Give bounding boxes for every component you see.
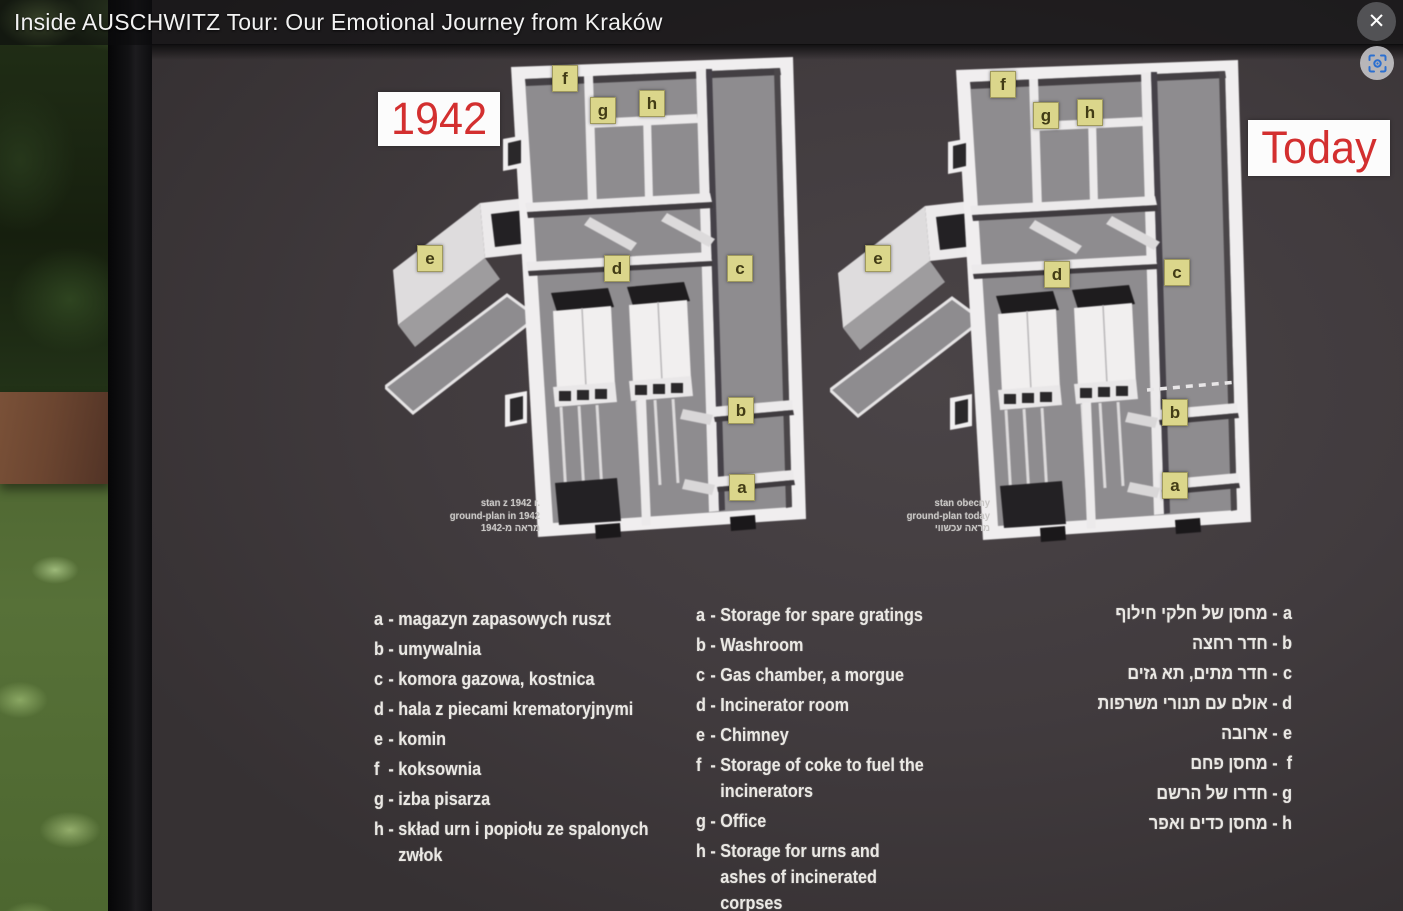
legend-key: c	[374, 666, 388, 692]
room-marker-g: g	[590, 97, 616, 124]
close-icon: ✕	[1368, 11, 1386, 32]
legend-text: חדרו של הרשם	[1156, 780, 1267, 806]
room-marker-b: b	[1162, 399, 1188, 426]
legend-text: אולם עם תנורי משרפות	[1098, 690, 1268, 716]
legend-separator: -	[1268, 810, 1279, 836]
legend-text: komora gazowa, kostnica	[398, 666, 594, 692]
today-text: Today	[1261, 122, 1376, 174]
legend-key: d	[696, 692, 710, 718]
legend-separator: -	[710, 602, 721, 628]
legend-key: b	[374, 636, 388, 662]
year-1942-text: 1942	[391, 93, 487, 145]
legend-separator: -	[710, 838, 721, 911]
legend-item: c-Gas chamber, a morgue	[696, 662, 926, 688]
video-title-bar: Inside AUSCHWITZ Tour: Our Emotional Jou…	[0, 0, 1403, 45]
legend-separator: -	[1268, 690, 1279, 716]
legend-text: hala z piecami krematoryjnymi	[398, 696, 633, 722]
legend-separator: -	[388, 726, 399, 752]
room-marker-b: b	[728, 397, 754, 424]
legend-item: b-חדר רחצה	[1056, 630, 1292, 656]
legend-text: מחסן של חלקי חילוף	[1115, 600, 1267, 626]
legend-text: חדר מתים, תא גזים	[1127, 660, 1267, 686]
legend-item: b-Washroom	[696, 632, 926, 658]
legend-key: h	[696, 838, 710, 911]
legend-item: g-Office	[696, 808, 926, 834]
legend-text: skład urn i popiołu ze spalonych zwłok	[398, 816, 650, 868]
legend-separator: -	[710, 692, 721, 718]
legend-separator: -	[388, 756, 399, 782]
caption-1942-he: מראה מ-1942	[396, 523, 540, 536]
legend-text: komin	[398, 726, 446, 752]
legend-separator: -	[710, 722, 721, 748]
close-button[interactable]: ✕	[1357, 2, 1396, 41]
visual-search-button[interactable]	[1360, 46, 1394, 80]
legend-separator: -	[1268, 780, 1279, 806]
legend-item: h-skład urn i popiołu ze spalonych zwłok	[374, 816, 650, 868]
legend-key: h	[374, 816, 388, 868]
legend-key: c	[696, 662, 710, 688]
legend-english: a-Storage for spare gratings b-Washroom …	[696, 602, 926, 911]
legend-separator: -	[388, 696, 399, 722]
legend-item: f-Storage of coke to fuel the incinerato…	[696, 752, 926, 804]
legend-separator: -	[388, 666, 399, 692]
legend-text: Office	[720, 808, 766, 834]
legend-text: Storage for urns and ashes of incinerate…	[720, 838, 925, 911]
legend-text: koksownia	[398, 756, 481, 782]
floor-plan-today: f g h e d c b a	[830, 58, 1260, 563]
legend-separator: -	[388, 786, 399, 812]
legend-separator: -	[710, 752, 721, 804]
legend-item: c-komora gazowa, kostnica	[374, 666, 650, 692]
room-marker-f: f	[990, 71, 1016, 98]
legend-key: g	[1279, 780, 1293, 806]
room-marker-c: c	[727, 255, 753, 282]
video-title: Inside AUSCHWITZ Tour: Our Emotional Jou…	[0, 9, 663, 36]
legend-text: magazyn zapasowych ruszt	[398, 606, 610, 632]
legend-separator: -	[388, 606, 399, 632]
room-marker-a: a	[1162, 472, 1188, 499]
caption-today: stan obecny ground-plan today מראה עכשוו…	[846, 498, 990, 536]
legend-separator: -	[1268, 720, 1279, 746]
room-marker-e: e	[865, 245, 891, 272]
legend-separator: -	[1268, 600, 1279, 626]
legend-text: חדר רחצה	[1192, 630, 1268, 656]
today-label: Today	[1248, 120, 1390, 176]
legend-text: Storage for spare gratings	[720, 602, 923, 628]
legend-separator: -	[388, 816, 399, 868]
legend-key: d	[374, 696, 388, 722]
legend-item: a-Storage for spare gratings	[696, 602, 926, 628]
legend-text: Chimney	[720, 722, 788, 748]
year-1942-label: 1942	[378, 92, 500, 146]
legend-separator: -	[710, 632, 721, 658]
legend-item: c-חדר מתים, תא גזים	[1056, 660, 1292, 686]
room-marker-h: h	[1077, 99, 1103, 126]
legend-key: d	[1279, 690, 1293, 716]
legend-key: f	[696, 752, 710, 804]
room-marker-c: c	[1164, 259, 1190, 286]
room-marker-d: d	[604, 255, 630, 282]
legend-text: Storage of coke to fuel the incinerators	[720, 752, 925, 804]
room-marker-e: e	[417, 245, 443, 272]
legend-key: a	[1279, 600, 1293, 626]
legend-key: g	[374, 786, 388, 812]
legend-key: b	[696, 632, 710, 658]
legend-item: a-magazyn zapasowych ruszt	[374, 606, 650, 632]
legend-text: Washroom	[720, 632, 803, 658]
legend-text: Gas chamber, a morgue	[720, 662, 904, 688]
legend-key: e	[374, 726, 388, 752]
legend-text: Incinerator room	[720, 692, 849, 718]
room-marker-d: d	[1044, 261, 1070, 288]
legend-text: umywalnia	[398, 636, 481, 662]
rusty-wall	[0, 392, 112, 484]
legend-item: f-koksownia	[374, 756, 650, 782]
legend-key: f	[374, 756, 388, 782]
legend-separator: -	[710, 808, 721, 834]
legend-text: מחסן כדים ואפר	[1149, 810, 1268, 836]
legend-polish: a-magazyn zapasowych ruszt b-umywalnia c…	[374, 606, 650, 872]
room-marker-f: f	[552, 65, 578, 92]
legend-key: g	[696, 808, 710, 834]
legend-item: d-Incinerator room	[696, 692, 926, 718]
legend-item: e-komin	[374, 726, 650, 752]
legend-key: f	[1279, 750, 1293, 776]
outdoor-photo-strip	[0, 0, 152, 911]
room-marker-h: h	[639, 90, 665, 117]
room-marker-a: a	[729, 474, 755, 501]
legend-text: izba pisarza	[398, 786, 490, 812]
caption-today-pl: stan obecny	[935, 498, 990, 509]
legend-text: מחסן פחם	[1190, 750, 1267, 776]
legend-item: e-ארובה	[1056, 720, 1292, 746]
legend-text: ארובה	[1221, 720, 1268, 746]
caption-1942-en: ground-plan in 1942	[450, 511, 540, 522]
screenshot-root: f g h e d c b a f g h e d c b a 1942 Tod…	[0, 0, 1403, 911]
legend-item: a-מחסן של חלקי חילוף	[1056, 600, 1292, 626]
legend-item: d-אולם עם תנורי משרפות	[1056, 690, 1292, 716]
floor-plan-illustration	[830, 58, 1260, 563]
legend-key: e	[696, 722, 710, 748]
legend-separator: -	[1268, 660, 1279, 686]
legend-key: a	[374, 606, 388, 632]
legend-separator: -	[1268, 630, 1279, 656]
caption-today-en: ground-plan today	[907, 511, 990, 522]
room-marker-g: g	[1033, 102, 1059, 129]
legend-key: a	[696, 602, 710, 628]
caption-1942: stan z 1942 r. ground-plan in 1942 מראה …	[396, 498, 540, 536]
legend-separator: -	[1268, 750, 1279, 776]
legend-item: h-Storage for urns and ashes of incinera…	[696, 838, 926, 911]
legend-key: c	[1279, 660, 1293, 686]
legend-item: h-מחסן כדים ואפר	[1056, 810, 1292, 836]
caption-1942-pl: stan z 1942 r.	[481, 498, 540, 509]
legend-key: h	[1279, 810, 1293, 836]
legend-key: e	[1279, 720, 1293, 746]
legend-item: f-מחסן פחם	[1056, 750, 1292, 776]
legend-item: b-umywalnia	[374, 636, 650, 662]
removed-wall-dashed-line	[1145, 376, 1240, 396]
legend-separator: -	[710, 662, 721, 688]
legend-item: d-hala z piecami krematoryjnymi	[374, 696, 650, 722]
caption-today-he: מראה עכשווי	[846, 523, 990, 536]
legend-item: g-חדרו של הרשם	[1056, 780, 1292, 806]
visual-search-icon	[1368, 54, 1387, 73]
legend-separator: -	[388, 636, 399, 662]
legend-key: b	[1279, 630, 1293, 656]
board-frame-edge	[108, 0, 154, 911]
legend-hebrew: a-מחסן של חלקי חילוף b-חדר רחצה c-חדר מת…	[1056, 600, 1292, 840]
legend-item: e-Chimney	[696, 722, 926, 748]
legend-item: g-izba pisarza	[374, 786, 650, 812]
